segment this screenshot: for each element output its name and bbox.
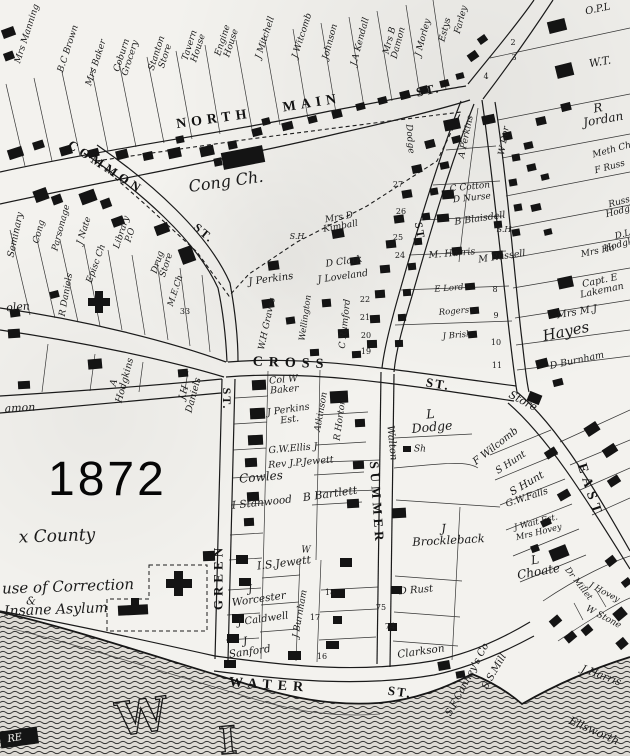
building-footprint bbox=[322, 299, 332, 308]
street-label: ST. bbox=[387, 684, 413, 700]
building-footprint bbox=[429, 187, 438, 195]
owner-label: L Dodge bbox=[410, 407, 452, 436]
building-footprint bbox=[511, 153, 520, 161]
lot-number: 11 bbox=[492, 362, 502, 370]
lot-number: 74 bbox=[385, 623, 395, 631]
building-footprint bbox=[224, 660, 236, 668]
owner-label: S.H bbox=[497, 226, 512, 234]
building-footprint bbox=[370, 315, 380, 324]
lot-number: 25 bbox=[393, 234, 403, 242]
building-footprint bbox=[511, 228, 520, 236]
building-footprint bbox=[470, 307, 480, 315]
lot-number: 19 bbox=[361, 348, 371, 356]
building-footprint bbox=[174, 571, 183, 596]
lot-number: 8 bbox=[492, 286, 497, 294]
building-footprint bbox=[465, 283, 476, 291]
lot-number: 24 bbox=[395, 252, 405, 260]
lot-number: 27 bbox=[393, 181, 403, 189]
building-footprint bbox=[310, 349, 319, 356]
building-footprint bbox=[508, 178, 517, 186]
river-letter: I bbox=[217, 721, 238, 756]
building-footprint bbox=[95, 291, 103, 313]
owner-label: olen bbox=[6, 300, 31, 313]
map-linework bbox=[0, 0, 630, 756]
building-footprint bbox=[355, 419, 365, 428]
lot-number: 75 bbox=[376, 604, 386, 612]
building-footprint bbox=[513, 203, 522, 211]
owner-label: R Jordan bbox=[580, 99, 618, 129]
building-footprint bbox=[213, 157, 222, 166]
building-footprint bbox=[403, 446, 411, 452]
building-footprint bbox=[326, 641, 339, 649]
river bbox=[0, 612, 630, 756]
owner-label: Dodge bbox=[403, 124, 415, 154]
building-footprint bbox=[131, 598, 139, 607]
owner-label: amon bbox=[4, 402, 35, 415]
building-footprint bbox=[333, 616, 342, 624]
lot-number: 18 bbox=[325, 589, 335, 597]
building-footprint bbox=[236, 555, 248, 564]
owner-label: Sh bbox=[414, 445, 426, 454]
building-footprint bbox=[392, 508, 407, 519]
street-label: CROSS bbox=[252, 356, 329, 373]
building-footprint bbox=[353, 461, 364, 470]
lot-number: 21 bbox=[360, 314, 370, 322]
building-footprint bbox=[245, 458, 257, 468]
building-footprint bbox=[401, 189, 412, 199]
lot-number: 3 bbox=[511, 54, 516, 62]
lot-number: 17 bbox=[310, 614, 320, 622]
lot-number: 2 bbox=[510, 39, 515, 47]
lot-number: 10 bbox=[491, 339, 501, 347]
building-footprint bbox=[398, 314, 406, 321]
building-footprint bbox=[8, 329, 21, 339]
lot-number: 16 bbox=[317, 653, 327, 661]
building-footprint bbox=[286, 316, 296, 324]
building-footprint bbox=[380, 265, 391, 274]
building-footprint bbox=[244, 518, 254, 527]
building-footprint bbox=[88, 358, 103, 369]
owner-label: J Sanford bbox=[227, 634, 266, 660]
building-footprint bbox=[395, 340, 403, 347]
street-label: ST. bbox=[412, 221, 427, 244]
lot-number: 20 bbox=[361, 332, 371, 340]
building-footprint bbox=[340, 558, 352, 567]
year-overlay: 1872 bbox=[48, 452, 167, 507]
building-footprint bbox=[288, 651, 301, 660]
insane-asylum-label: Insane Asylum bbox=[4, 601, 108, 619]
owner-label: J Brockleback bbox=[411, 522, 476, 549]
lot-number: 22 bbox=[360, 296, 370, 304]
building-footprint bbox=[422, 212, 431, 220]
owner-label: S.H bbox=[290, 233, 305, 241]
building-footprint bbox=[352, 351, 361, 358]
street-label: GREEN bbox=[211, 544, 224, 610]
lot-number: 4 bbox=[483, 73, 488, 81]
building-footprint bbox=[375, 290, 386, 299]
owner-label: Col W Baker bbox=[261, 373, 307, 396]
lot-number: 9 bbox=[493, 312, 498, 320]
street-label: ST. bbox=[425, 376, 451, 393]
lot-number: 33 bbox=[180, 308, 190, 316]
building-footprint bbox=[408, 263, 417, 271]
historic-town-map-1872: NORTHMAINST.COMMONST.CROSSST.ST.GREENST.… bbox=[0, 0, 630, 756]
owner-label: x County bbox=[18, 527, 95, 547]
owner-label: W bbox=[301, 546, 310, 555]
building-footprint bbox=[403, 289, 411, 297]
building-footprint bbox=[437, 213, 450, 222]
building-footprint bbox=[18, 381, 30, 390]
street-label: ST. bbox=[221, 388, 233, 411]
building-footprint bbox=[267, 260, 279, 270]
lot-number: 26 bbox=[396, 208, 406, 216]
river-letter: W bbox=[113, 690, 171, 744]
building-footprint bbox=[347, 499, 359, 509]
building-footprint bbox=[248, 435, 264, 446]
building-footprint bbox=[250, 408, 266, 420]
